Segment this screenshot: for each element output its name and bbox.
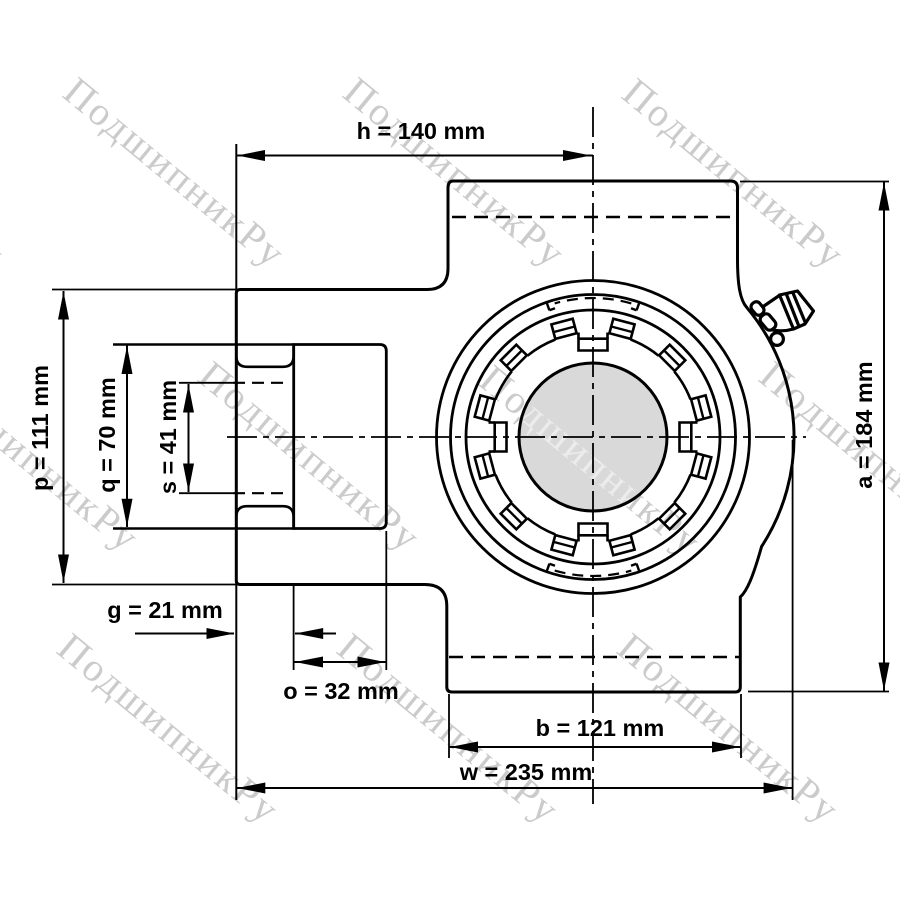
svg-text:o = 32 mm: o = 32 mm: [283, 678, 399, 704]
svg-text:b = 121 mm: b = 121 mm: [536, 715, 665, 741]
svg-text:p = 111 mm: p = 111 mm: [27, 365, 53, 491]
svg-text:a = 184 mm: a = 184 mm: [851, 361, 877, 488]
svg-text:s = 41 mm: s = 41 mm: [155, 380, 181, 494]
svg-text:g = 21 mm: g = 21 mm: [107, 597, 223, 623]
svg-text:q = 70 mm: q = 70 mm: [94, 377, 120, 493]
svg-text:w = 235 mm: w = 235 mm: [459, 759, 593, 785]
svg-text:h = 140 mm: h = 140 mm: [357, 118, 486, 144]
